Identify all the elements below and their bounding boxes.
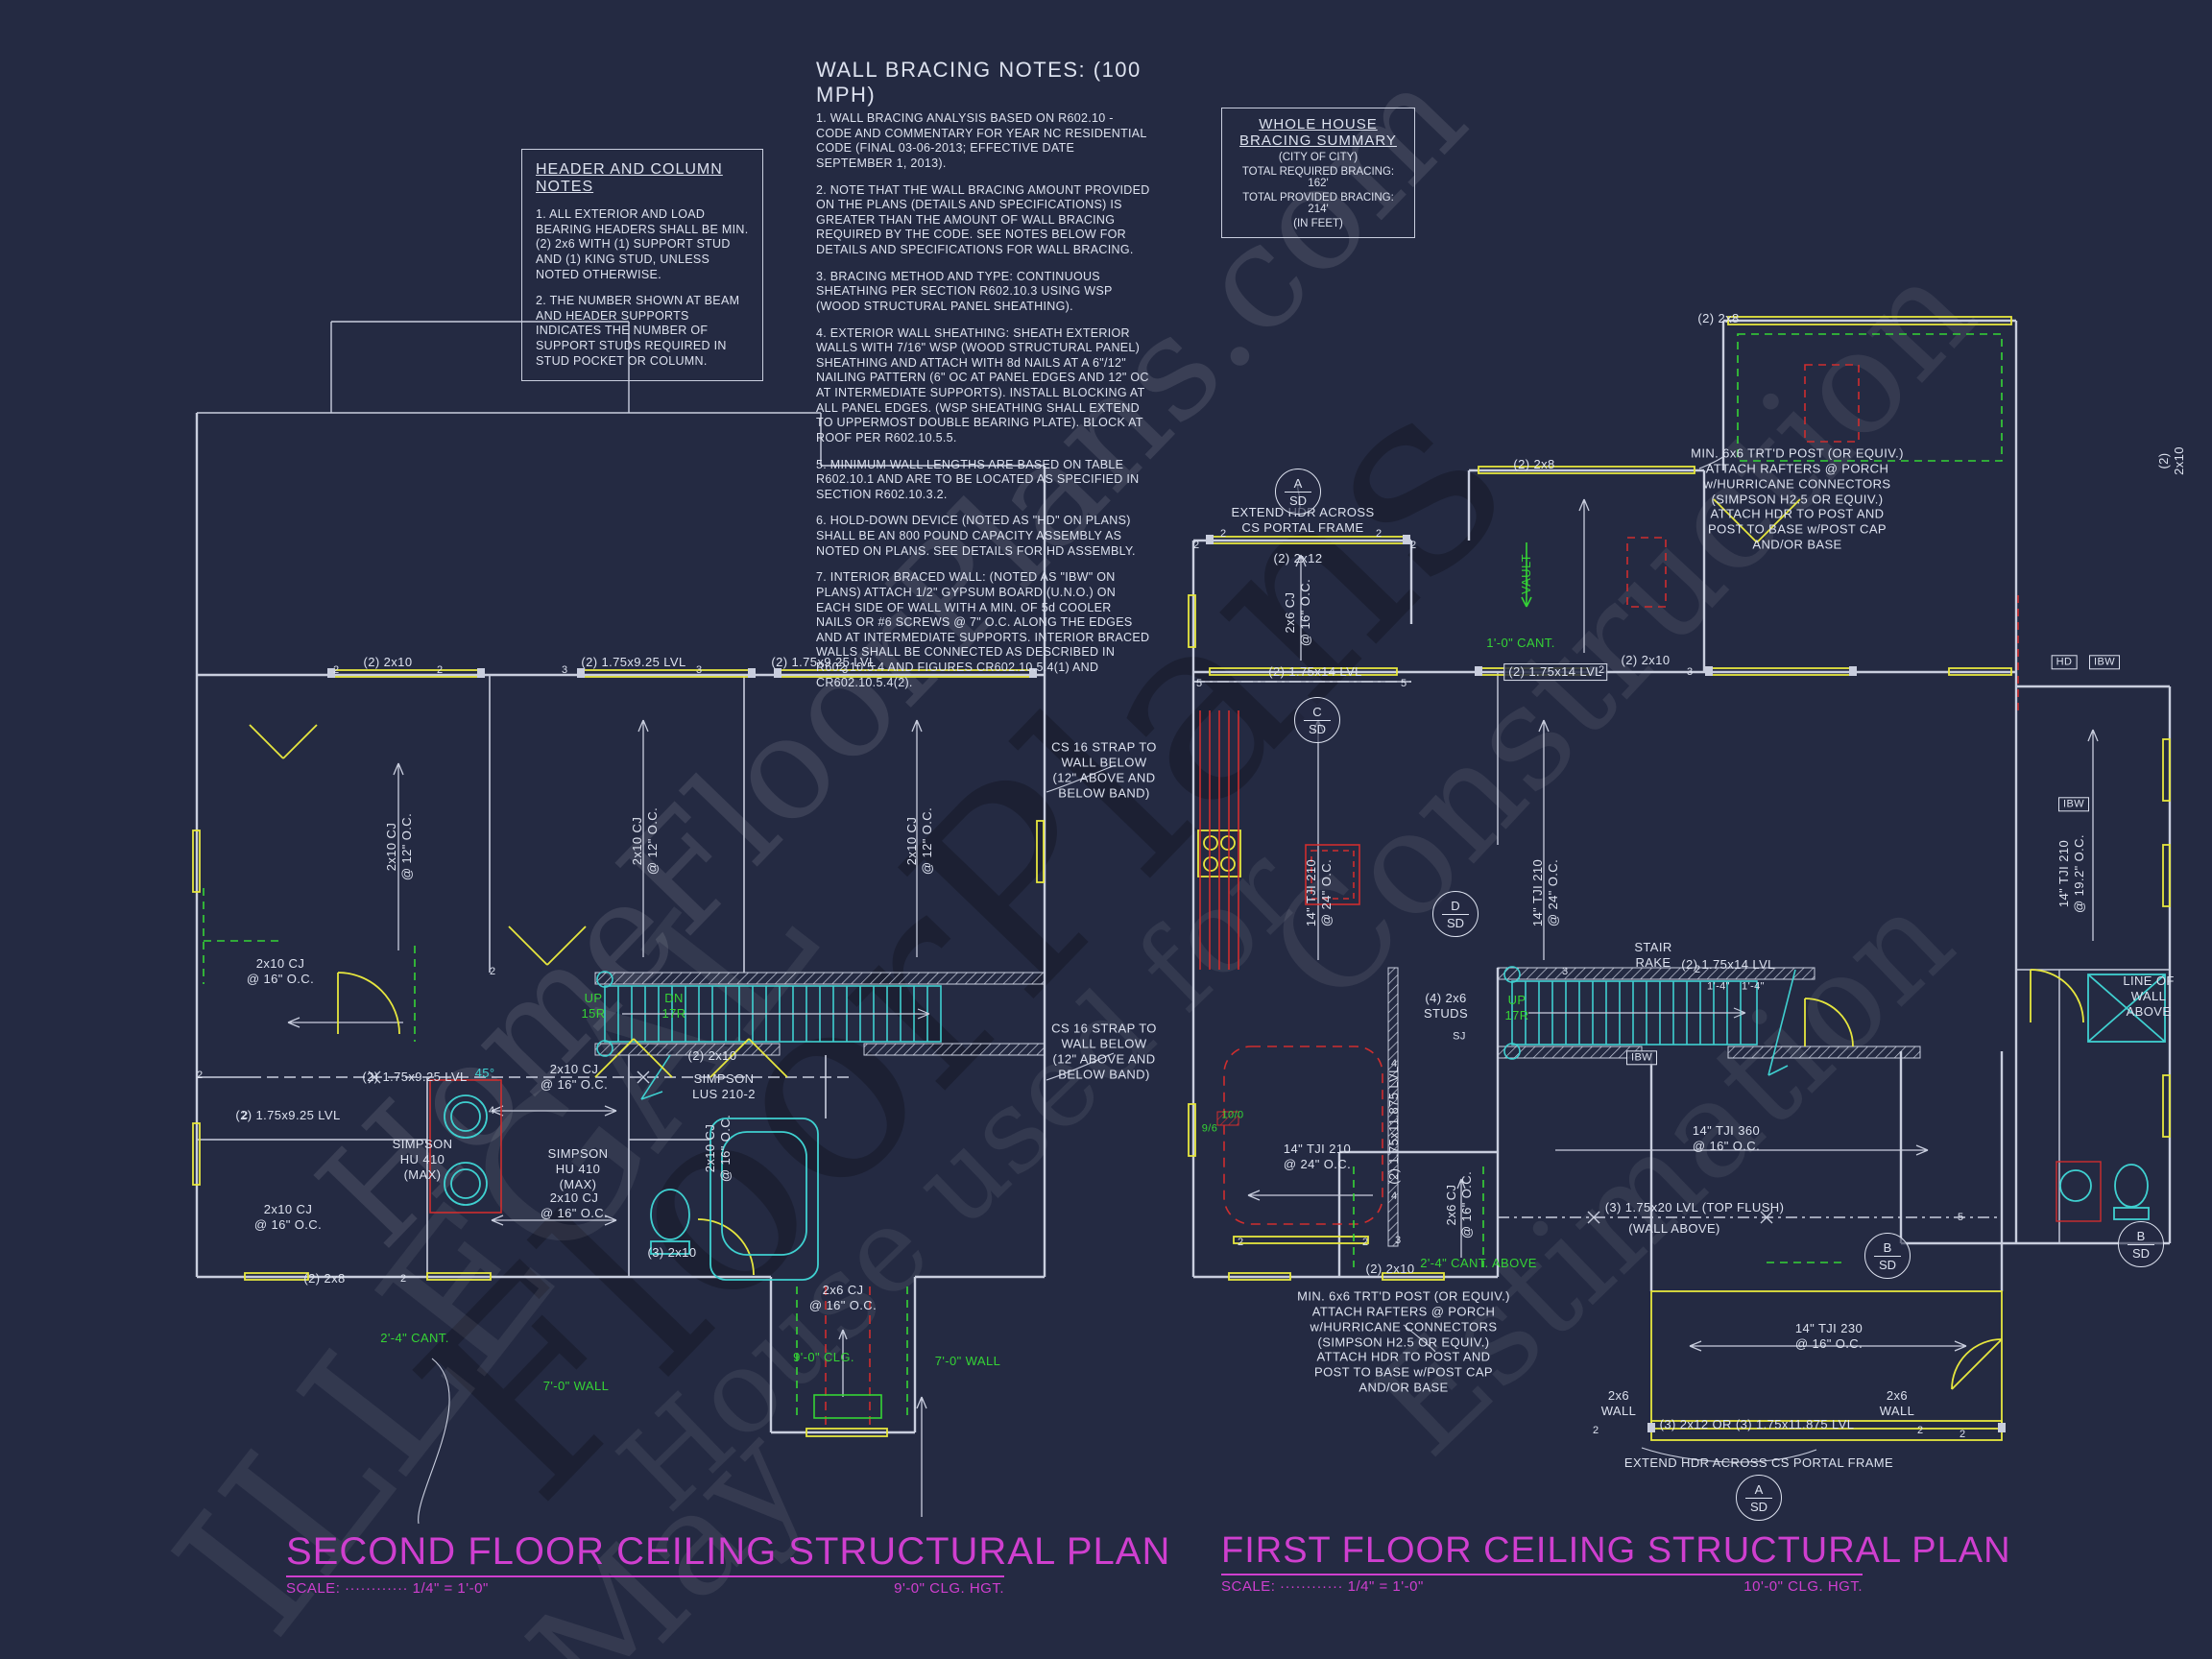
stud-count-marker: 2 bbox=[400, 1273, 406, 1285]
section-callout: A SD bbox=[1736, 1475, 1782, 1521]
summary-provided: TOTAL PROVIDED BRACING: 214' bbox=[1232, 192, 1405, 215]
plan-label: 14" TJI 210 @ 24" O.C. bbox=[1304, 859, 1334, 926]
callout-sheet: SD bbox=[1289, 493, 1307, 508]
wall-bracing-title: WALL BRACING NOTES: (100 MPH) bbox=[816, 58, 1150, 108]
plan-label: 14" TJI 210 @ 24" O.C. bbox=[1284, 1142, 1351, 1172]
stud-count-marker: 5 bbox=[1958, 1212, 1963, 1223]
plan-label: 7'-0" WALL bbox=[935, 1354, 1000, 1369]
plan-label: 45° bbox=[475, 1066, 495, 1081]
stud-count-marker: 3 bbox=[562, 664, 567, 676]
second-floor-title-block: SECOND FLOOR CEILING STRUCTURAL PLAN SCA… bbox=[286, 1530, 1004, 1597]
stud-count-marker: 3 bbox=[842, 664, 848, 676]
stud-count-marker: 2 bbox=[1193, 540, 1199, 551]
stair-up-label: UP 17R bbox=[1504, 993, 1528, 1023]
callout-letter: B bbox=[1874, 1240, 1902, 1257]
plan-label: (2) 1.75x9.25 LVL bbox=[771, 655, 876, 670]
callout-sheet: SD bbox=[1447, 915, 1464, 930]
post-note: MIN. 6x6 TRT'D POST (OR EQUIV.) ATTACH R… bbox=[1297, 1288, 1510, 1395]
plan-label: 2x10 CJ @ 16" O.C. bbox=[541, 1062, 608, 1093]
stud-count-marker: 3 bbox=[1562, 966, 1568, 977]
stud-count-marker: 5 bbox=[1196, 678, 1202, 689]
plan-label: 2x6 CJ @ 16" O.C. bbox=[1283, 579, 1313, 646]
callout-letter: D bbox=[1442, 899, 1470, 915]
summary-title: WHOLE HOUSE bbox=[1232, 116, 1405, 132]
plan-label: (2) 1.75x9.25 LVL bbox=[362, 1070, 467, 1085]
braced-wall-tag: IBW bbox=[2058, 797, 2089, 811]
plan-label: CS 16 STRAP TO WALL BELOW (12" ABOVE AND… bbox=[1051, 739, 1157, 800]
stud-count-marker: 2 bbox=[242, 1110, 248, 1121]
dimension-label: 1'-4" bbox=[1707, 980, 1730, 993]
plan-label: (2) 2x8 bbox=[303, 1271, 345, 1286]
hold-down-tag: HD bbox=[2052, 655, 2078, 669]
ceiling-height: 10'-0" CLG. HGT. bbox=[1743, 1578, 1863, 1595]
callout-sheet: SD bbox=[1750, 1499, 1767, 1514]
plan-label: (3) 2x10 bbox=[648, 1245, 697, 1261]
whole-house-bracing-summary: WHOLE HOUSE BRACING SUMMARY (CITY OF CIT… bbox=[1221, 108, 1415, 238]
plan-label: 7'-0" WALL bbox=[543, 1379, 609, 1394]
stud-count-marker: 2 bbox=[1410, 540, 1416, 551]
stud-count-marker: 2 bbox=[197, 1070, 203, 1081]
plan-label: (2) 1.75x9.25 LVL bbox=[581, 655, 685, 670]
first-floor-title-block: FIRST FLOOR CEILING STRUCTURAL PLAN SCAL… bbox=[1221, 1530, 1863, 1595]
stud-count-marker: 3 bbox=[1687, 666, 1693, 678]
stud-count-marker: 2 bbox=[333, 664, 339, 676]
dimension-label: 1'-4" bbox=[1742, 980, 1765, 993]
plan-label: (2) 2x12 bbox=[1274, 551, 1323, 566]
plan-label: 14" TJI 210 @ 19.2" O.C. bbox=[2056, 834, 2087, 913]
note-item: 3. BRACING METHOD AND TYPE: CONTINUOUS S… bbox=[816, 270, 1150, 315]
plan-label: (2) 1.75x11.875 LVL bbox=[1386, 1066, 1402, 1184]
plan-title: FIRST FLOOR CEILING STRUCTURAL PLAN bbox=[1221, 1530, 1863, 1575]
plan-label: (2) 2x10 bbox=[2156, 441, 2187, 481]
plan-label: 2x10 CJ @ 12" O.C. bbox=[630, 807, 661, 875]
callout-sheet: SD bbox=[1309, 721, 1326, 736]
note-item: 5. MINIMUM WALL LENGTHS ARE BASED ON TAB… bbox=[816, 458, 1150, 503]
stud-count-marker: 2 bbox=[1376, 528, 1382, 540]
stud-count-marker: 4 bbox=[1391, 1058, 1397, 1070]
plan-label: 14" TJI 360 @ 16" O.C. bbox=[1693, 1123, 1760, 1154]
plan-label: 14" TJI 230 @ 16" O.C. bbox=[1795, 1321, 1863, 1352]
plan-label: 9/6 bbox=[1202, 1122, 1218, 1135]
plan-label: 14" TJI 210 @ 24" O.C. bbox=[1530, 859, 1561, 926]
wall-bracing-notes: WALL BRACING NOTES: (100 MPH) 1. WALL BR… bbox=[816, 58, 1150, 702]
plan-label: (2) 2x10 bbox=[688, 1048, 737, 1064]
stud-count-marker: 4 bbox=[1391, 1190, 1397, 1202]
plan-label: (2) 2x8 bbox=[1697, 311, 1739, 326]
plan-label: (3) 2x12 OR (3) 1.75x11.875 LVL bbox=[1660, 1417, 1855, 1432]
plan-label: 2x10 CJ @ 16" O.C. bbox=[254, 1202, 322, 1233]
plan-scale: SCALE: ············ 1/4" = 1'-0" bbox=[1221, 1578, 1424, 1595]
note-item: 2. THE NUMBER SHOWN AT BEAM AND HEADER S… bbox=[536, 294, 749, 369]
callout-letter: A bbox=[1745, 1482, 1773, 1499]
braced-wall-tag: IBW bbox=[2089, 655, 2120, 669]
plan-label: 2x10 CJ @ 16" O.C. bbox=[247, 956, 314, 987]
section-callout: B SD bbox=[1864, 1233, 1911, 1279]
plan-label: 2'-4" CANT. ABOVE bbox=[1420, 1256, 1537, 1271]
plan-label: SIMPSON HU 410 (MAX) bbox=[393, 1137, 453, 1183]
plan-label: STAIR RAKE bbox=[1634, 940, 1671, 971]
blueprint-sheet: FloorPlans ILLEGAL HomeFloorPlans.com Ma… bbox=[0, 0, 2212, 1659]
plan-label: 10/0 bbox=[1221, 1109, 1243, 1121]
plan-label: 2x10 CJ @ 12" O.C. bbox=[904, 807, 935, 875]
stud-count-marker: 2 bbox=[1362, 1237, 1368, 1248]
plan-label: LINE OF WALL ABOVE bbox=[2123, 974, 2174, 1020]
callout-letter: A bbox=[1285, 476, 1312, 493]
stud-count-marker: 2 bbox=[1960, 1429, 1965, 1440]
plan-label: 2x6 CJ @ 16" O.C. bbox=[1444, 1171, 1475, 1238]
plan-label: (2) 2x10 bbox=[364, 655, 413, 670]
callout-letter: C bbox=[1304, 705, 1332, 721]
stud-count-marker: 2 bbox=[1917, 1425, 1923, 1436]
plan-scale: SCALE: ············ 1/4" = 1'-0" bbox=[286, 1580, 489, 1597]
note-item: 2. NOTE THAT THE WALL BRACING AMOUNT PRO… bbox=[816, 183, 1150, 258]
plan-label: (2) 1.75x14 LVL bbox=[1503, 663, 1607, 681]
summary-subtitle: (CITY OF CITY) bbox=[1232, 152, 1405, 163]
plan-label: (2) 2x10 bbox=[1622, 653, 1671, 668]
summary-required: TOTAL REQUIRED BRACING: 162' bbox=[1232, 166, 1405, 189]
stud-count-marker: 3 bbox=[1395, 1235, 1401, 1246]
section-callout: B SD bbox=[2118, 1221, 2164, 1267]
stud-count-marker: 3 bbox=[696, 664, 702, 676]
stud-count-marker: 2 bbox=[1599, 664, 1604, 676]
ceiling-height: 9'-0" CLG. HGT. bbox=[894, 1580, 1004, 1597]
stud-count-marker: 2 bbox=[437, 664, 443, 676]
section-callout: A SD bbox=[1275, 469, 1321, 515]
plan-label: SIMPSON HU 410 (MAX) bbox=[548, 1146, 609, 1192]
stair-up-label: UP 15R bbox=[581, 991, 605, 1022]
plan-label: (2) 1.75x14 LVL bbox=[1268, 664, 1362, 680]
plan-label: CS 16 STRAP TO WALL BELOW (12" ABOVE AND… bbox=[1051, 1021, 1157, 1081]
section-callout: C SD bbox=[1294, 697, 1340, 743]
note-item: 4. EXTERIOR WALL SHEATHING: SHEATH EXTER… bbox=[816, 326, 1150, 446]
plan-label: (2) 1.75x9.25 LVL bbox=[235, 1108, 340, 1123]
summary-unit: (IN FEET) bbox=[1232, 218, 1405, 229]
braced-wall-tag: IBW bbox=[1626, 1050, 1657, 1065]
stud-count-marker: 5 bbox=[1401, 678, 1407, 689]
plan-label: 2x6 CJ @ 16" O.C. bbox=[809, 1283, 877, 1313]
plan-label: (WALL ABOVE) bbox=[1628, 1221, 1720, 1237]
plan-label: VAULT bbox=[1519, 554, 1534, 594]
plan-label: 2x6 WALL bbox=[1880, 1388, 1915, 1419]
plan-label: (2) 2x8 bbox=[1513, 457, 1554, 472]
stud-count-marker: 2 bbox=[490, 966, 495, 977]
stud-count-marker: 2 bbox=[1220, 528, 1226, 540]
stair-dn-label: DN 17R bbox=[661, 991, 685, 1022]
note-item: 1. ALL EXTERIOR AND LOAD BEARING HEADERS… bbox=[536, 207, 749, 282]
plan-label: 2x10 CJ @ 16" O.C. bbox=[703, 1115, 733, 1182]
stud-count-marker: 2 bbox=[1238, 1237, 1243, 1248]
plan-label: EXTEND HDR ACROSS CS PORTAL FRAME bbox=[1624, 1455, 1893, 1471]
plan-label: 2'-4" CANT. bbox=[380, 1331, 448, 1346]
plan-label: (3) 1.75x20 LVL (TOP FLUSH) bbox=[1605, 1200, 1785, 1215]
plan-label: (2) 2x10 bbox=[1366, 1262, 1415, 1277]
post-note: MIN. 6x6 TRT'D POST (OR EQUIV.) ATTACH R… bbox=[1691, 445, 1904, 552]
stud-count-marker: 4 bbox=[489, 1105, 494, 1117]
plan-label: 9'-0" CLG. bbox=[793, 1350, 854, 1365]
plan-label: 1'-0" CANT. bbox=[1486, 636, 1554, 651]
header-column-notes-title: HEADER AND COLUMN NOTES bbox=[536, 161, 749, 196]
stud-count-marker: 2 bbox=[1695, 964, 1700, 975]
header-column-notes: HEADER AND COLUMN NOTES 1. ALL EXTERIOR … bbox=[521, 149, 763, 381]
note-item: 6. HOLD-DOWN DEVICE (NOTED AS "HD" ON PL… bbox=[816, 514, 1150, 559]
plan-label: SJ bbox=[1453, 1030, 1466, 1043]
plan-label: 2x10 CJ @ 16" O.C. bbox=[541, 1190, 608, 1221]
note-item: 1. WALL BRACING ANALYSIS BASED ON R602.1… bbox=[816, 111, 1150, 172]
plan-label: 2x10 CJ @ 12" O.C. bbox=[384, 813, 415, 880]
plan-label: 2x6 WALL bbox=[1601, 1388, 1637, 1419]
stud-count-marker: 2 bbox=[1593, 1425, 1599, 1436]
note-item: 7. INTERIOR BRACED WALL: (NOTED AS "IBW"… bbox=[816, 570, 1150, 690]
plan-label: (4) 2x6 STUDS bbox=[1424, 991, 1468, 1022]
callout-letter: B bbox=[2128, 1229, 2155, 1245]
callout-sheet: SD bbox=[1879, 1257, 1896, 1272]
callout-sheet: SD bbox=[2132, 1245, 2150, 1261]
plan-label: SIMPSON LUS 210-2 bbox=[692, 1071, 756, 1102]
section-callout: D SD bbox=[1432, 891, 1479, 937]
summary-title: BRACING SUMMARY bbox=[1232, 132, 1405, 149]
plan-title: SECOND FLOOR CEILING STRUCTURAL PLAN bbox=[286, 1530, 1004, 1577]
